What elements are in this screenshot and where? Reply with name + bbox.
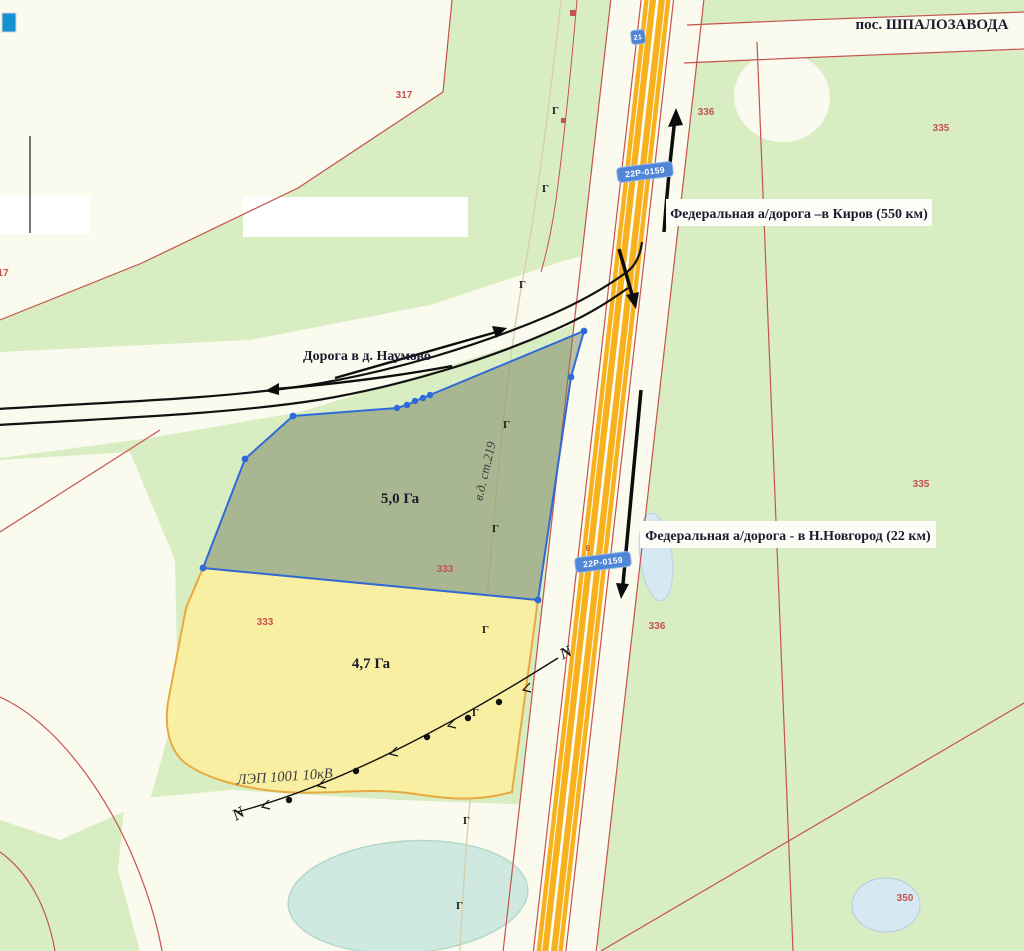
svg-text:Г: Г bbox=[482, 624, 489, 636]
cream-area-left bbox=[0, 452, 178, 840]
svg-text:Федеральная а/дорога - в Н.Нов: Федеральная а/дорога - в Н.Новгород (22 … bbox=[645, 529, 931, 544]
svg-text:Г: Г bbox=[463, 815, 470, 827]
map-canvas: N N Г Г Г Г Г Г Г Г Г 22Р-0159 22Р-0159 … bbox=[0, 0, 1024, 951]
parcel-number: 317 bbox=[396, 90, 413, 101]
svg-text:Г: Г bbox=[492, 523, 499, 535]
parcel-number: 6 bbox=[586, 544, 591, 553]
plot-4-7ha bbox=[167, 568, 538, 799]
parcel-number: 335 bbox=[913, 479, 930, 490]
svg-text:Г: Г bbox=[503, 419, 510, 431]
plot-5ha-area-label: 5,0 Га bbox=[381, 491, 420, 507]
parcel-number: 317 bbox=[0, 268, 9, 279]
parcel-number: 333 bbox=[257, 617, 274, 628]
whiteout-patch bbox=[0, 196, 90, 234]
svg-text:Г: Г bbox=[472, 707, 479, 719]
naumovo-road-label: Дорога в д. Наумово bbox=[303, 349, 431, 364]
km-marker: 21 bbox=[630, 29, 646, 45]
svg-text:Г: Г bbox=[542, 183, 549, 195]
svg-text:Г: Г bbox=[519, 279, 526, 291]
novgorod-direction-label: Федеральная а/дорога - в Н.Новгород (22 … bbox=[640, 521, 936, 548]
kirov-direction-label: Федеральная а/дорога –в Киров (550 км) bbox=[666, 199, 932, 226]
parcel-number: 335 bbox=[933, 123, 950, 134]
parcel-number: 336 bbox=[649, 621, 666, 632]
svg-text:Г: Г bbox=[456, 900, 463, 912]
tool-icon[interactable] bbox=[2, 13, 16, 32]
pond-bottom-right bbox=[852, 878, 920, 932]
settlement-label: пос. ШПАЛОЗАВОДА bbox=[856, 17, 1009, 33]
plot-4-7ha-area-label: 4,7 Га bbox=[352, 656, 391, 672]
parcel-number: 333 bbox=[437, 564, 454, 575]
svg-text:Г: Г bbox=[552, 105, 559, 117]
svg-text:Федеральная а/дорога –в Киров: Федеральная а/дорога –в Киров (550 км) bbox=[670, 207, 928, 222]
svg-text:21: 21 bbox=[633, 34, 642, 42]
whiteout-patch bbox=[243, 197, 468, 237]
parcel-number: 350 bbox=[897, 893, 914, 904]
parcel-number: 336 bbox=[698, 107, 715, 118]
